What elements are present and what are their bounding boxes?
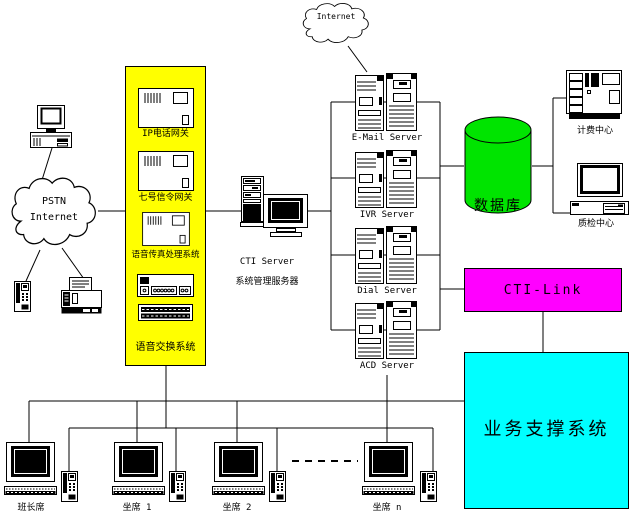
billing-center-label: 计费中心 — [558, 126, 632, 136]
supervisor-phone-icon — [61, 471, 78, 502]
pstn-cloud-label-line1: PSTN — [8, 196, 100, 208]
email-server-icon — [355, 73, 417, 131]
internet-cloud — [300, 1, 372, 47]
cti-link-label: CTI-Link — [504, 283, 583, 298]
email-server-label: E-Mail Server — [340, 133, 434, 143]
voice-card-device-icon — [137, 274, 194, 297]
cti-architecture-diagram: Internet PSTN Internet IP电话网关 七号信令网关 语音传… — [0, 0, 632, 516]
voice-fax-system-label: 语音传真处理系统 — [125, 251, 206, 261]
pstn-cloud-label-line2: Internet — [8, 212, 100, 224]
business-support-label: 业务支撑系统 — [484, 415, 610, 441]
switch-panel-device-icon — [138, 304, 193, 321]
agent1-phone-icon — [169, 471, 186, 502]
billing-printer-icon — [566, 70, 624, 122]
dial-server-icon — [355, 226, 417, 284]
ss7-gateway-icon — [138, 151, 194, 191]
agentn-phone-icon — [420, 471, 437, 502]
desktop-pc-icon — [30, 105, 72, 149]
agent1-seat-label: 坐席 1 — [103, 503, 171, 513]
voice-switch-label: 语音交换系统 — [125, 342, 206, 354]
voice-fax-system-icon — [138, 212, 194, 246]
agent1-monitor-icon — [112, 442, 166, 496]
ip-phone-gateway-icon — [138, 88, 194, 128]
dial-server-label: Dial Server — [340, 286, 434, 296]
cti-link-box: CTI-Link — [464, 268, 622, 312]
ivr-server-icon — [355, 150, 417, 208]
database-label: 数据库 — [464, 195, 532, 215]
qa-computer-icon — [570, 163, 630, 215]
agent2-monitor-icon — [212, 442, 266, 496]
cti-server-monitor-icon — [263, 194, 309, 238]
cti-server-subtitle: 系统管理服务器 — [216, 277, 318, 287]
agentn-seat-label: 坐席 n — [353, 503, 421, 513]
telephone-icon — [14, 280, 31, 313]
acd-server-icon — [355, 301, 417, 359]
business-support-box: 业务支撑系统 — [464, 352, 629, 509]
ivr-server-label: IVR Server — [340, 210, 434, 220]
internet-cloud-label: Internet — [300, 12, 372, 21]
supervisor-seat-label: 班长席 — [0, 503, 62, 513]
cti-server-name: CTI Server — [221, 257, 313, 267]
fax-machine-icon — [60, 277, 103, 315]
ss7-gateway-label: 七号信令网关 — [125, 193, 206, 203]
agent2-phone-icon — [269, 471, 286, 502]
agent2-seat-label: 坐席 2 — [203, 503, 271, 513]
supervisor-monitor-icon — [4, 442, 58, 496]
agentn-monitor-icon — [362, 442, 416, 496]
acd-server-label: ACD Server — [340, 361, 434, 371]
qa-center-label: 质检中心 — [556, 219, 632, 229]
ip-phone-gateway-label: IP电话网关 — [125, 129, 206, 139]
